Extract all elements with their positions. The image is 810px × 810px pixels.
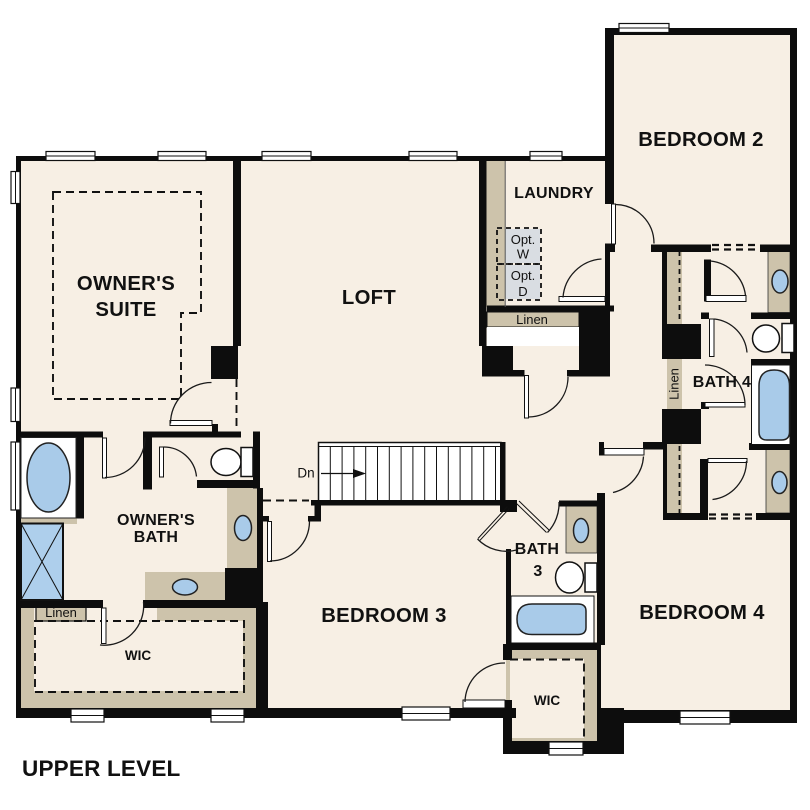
svg-text:OWNER'S: OWNER'S <box>117 512 195 529</box>
svg-text:Dn: Dn <box>297 466 314 481</box>
svg-text:LAUNDRY: LAUNDRY <box>514 185 594 202</box>
svg-text:BATH: BATH <box>515 541 559 558</box>
svg-text:W: W <box>517 247 530 262</box>
svg-text:Linen: Linen <box>667 368 682 400</box>
svg-text:Opt.: Opt. <box>511 232 536 247</box>
svg-text:WIC: WIC <box>534 693 560 708</box>
svg-text:Linen: Linen <box>45 605 77 620</box>
svg-text:Opt.: Opt. <box>511 268 536 283</box>
svg-text:3: 3 <box>533 563 542 580</box>
svg-text:BEDROOM 3: BEDROOM 3 <box>321 605 447 627</box>
svg-text:OWNER'S: OWNER'S <box>77 273 175 295</box>
svg-text:BEDROOM 4: BEDROOM 4 <box>639 602 765 624</box>
svg-text:BATH 4: BATH 4 <box>693 374 751 391</box>
svg-text:LOFT: LOFT <box>342 287 396 309</box>
svg-text:D: D <box>518 284 527 299</box>
svg-text:WIC: WIC <box>125 648 151 663</box>
svg-text:UPPER LEVEL: UPPER LEVEL <box>22 756 181 781</box>
svg-text:BATH: BATH <box>134 529 178 546</box>
svg-text:Linen: Linen <box>516 312 548 327</box>
svg-text:BEDROOM 2: BEDROOM 2 <box>638 129 764 151</box>
svg-text:SUITE: SUITE <box>95 299 156 321</box>
